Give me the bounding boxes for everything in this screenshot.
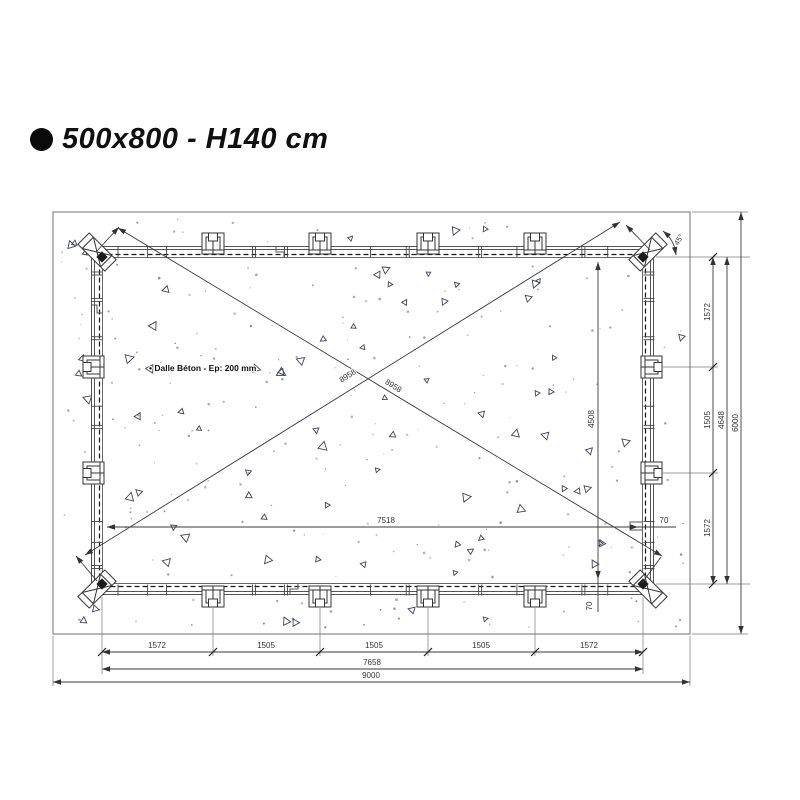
dim-right-total: 6000 xyxy=(731,414,740,432)
slab-note: • Dalle Béton - Ep: 200 mm xyxy=(149,363,257,373)
plan-drawing: 8958 8958 45° 7518 70 4508 xyxy=(0,0,800,800)
interior-width-label: 7518 xyxy=(377,516,395,525)
dim-right-seg-1: 1572 xyxy=(703,303,712,321)
interior-height-offset-label: 70 xyxy=(585,601,594,610)
dim-bottom-seg-5: 1572 xyxy=(580,641,598,650)
dim-bottom-subtotal: 7658 xyxy=(363,658,381,667)
dim-right-seg-3: 1572 xyxy=(703,519,712,537)
slab-note-label: • Dalle Béton - Ep: 200 mm xyxy=(149,363,257,373)
dim-right-seg-2: 1505 xyxy=(703,411,712,429)
interior-height-label: 4508 xyxy=(587,410,596,428)
dim-bottom-seg-4: 1505 xyxy=(472,641,490,650)
dim-bottom-seg-1: 1572 xyxy=(148,641,166,650)
drawing-sheet: 500x800 - H140 cm xyxy=(0,0,800,800)
interior-width-offset-label: 70 xyxy=(660,516,669,525)
dim-bottom-seg-3: 1505 xyxy=(365,641,383,650)
dim-bottom-total: 9000 xyxy=(362,671,380,680)
dim-right-subtotal: 4648 xyxy=(717,411,726,429)
dim-bottom-seg-2: 1505 xyxy=(257,641,275,650)
